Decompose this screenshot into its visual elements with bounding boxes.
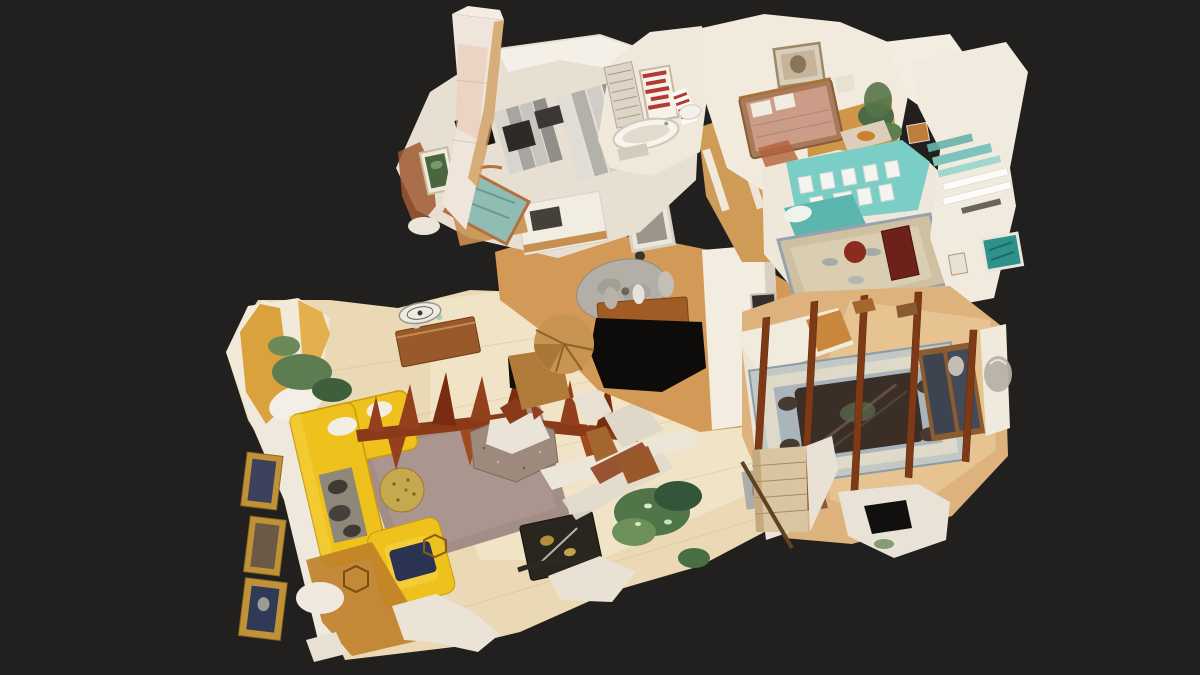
floor-lamp-shade <box>296 582 344 614</box>
houseplant <box>312 378 352 402</box>
round-ottoman <box>380 468 424 512</box>
scan-void <box>864 500 912 534</box>
picture-frame <box>244 516 287 576</box>
houseplant <box>864 82 892 118</box>
picture-frame <box>948 253 967 275</box>
desk-chair <box>844 241 866 263</box>
picture-frame <box>241 452 283 510</box>
dollhouse-model <box>0 0 1200 675</box>
dollhouse-viewport[interactable] <box>0 0 1200 675</box>
teal-picture <box>981 233 1022 271</box>
houseplant <box>268 336 300 356</box>
picture-frame <box>238 578 287 641</box>
picture-frame <box>907 122 930 143</box>
